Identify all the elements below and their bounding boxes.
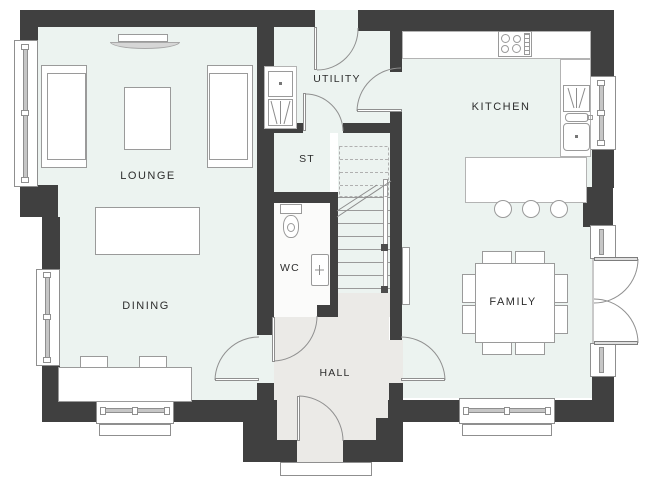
room-label-kitchen: KITCHEN <box>472 101 531 113</box>
wall-segment <box>257 192 338 203</box>
dining-door <box>215 378 259 381</box>
room-label-wc: WC <box>280 262 300 274</box>
wall-segment <box>257 305 272 317</box>
window-mullion <box>21 110 29 116</box>
console-table <box>95 207 200 255</box>
window-mullion <box>597 80 605 86</box>
window-sill <box>462 424 552 436</box>
dining-table <box>58 367 192 402</box>
room-label-dining: DINING <box>122 300 170 312</box>
window-mullion <box>100 407 106 415</box>
wc-doorway-floor <box>272 305 317 317</box>
store-door <box>303 93 306 131</box>
back-door <box>314 27 317 70</box>
family-chair <box>554 305 568 334</box>
utility-kitchen-door <box>357 109 402 112</box>
kitchen-tap <box>587 115 593 120</box>
basin <box>311 254 329 286</box>
hob-burner <box>512 44 521 53</box>
wall-segment <box>591 10 614 80</box>
back-doorway-floor <box>315 10 358 27</box>
bar-stool <box>494 200 512 218</box>
sofa-cushion <box>47 73 86 160</box>
wall-segment <box>343 123 390 133</box>
wall-segment <box>390 140 402 340</box>
french-door-arc <box>594 299 638 343</box>
wall-segment <box>20 185 58 217</box>
handrail-post <box>381 286 388 293</box>
window-mullion <box>43 314 51 320</box>
hob-burner <box>501 45 509 53</box>
window-mullion <box>43 272 51 278</box>
wall-segment <box>390 27 402 72</box>
store-doorway-floor <box>303 123 343 133</box>
family-chair <box>482 342 512 355</box>
coffee-table <box>124 87 171 150</box>
wall-segment <box>390 112 402 140</box>
family-chair <box>515 342 545 355</box>
wall-segment <box>402 10 614 31</box>
bar-stool <box>550 200 568 218</box>
sink-drain <box>575 135 578 138</box>
room-label-family: FAMILY <box>489 296 536 308</box>
family-doorway-floor <box>389 340 403 383</box>
breakfast-bar <box>465 157 587 203</box>
wall-segment <box>20 10 262 27</box>
wall-segment <box>42 400 100 422</box>
wall-segment <box>257 383 274 440</box>
window-mullion <box>545 407 551 415</box>
window-mullion <box>597 140 605 146</box>
wall-segment <box>592 376 614 422</box>
radiator <box>402 247 410 305</box>
stair-landing-floor <box>338 293 390 317</box>
family-chair <box>462 305 476 334</box>
wall-segment <box>583 187 613 227</box>
window-mullion <box>132 407 138 415</box>
sink-drain <box>279 82 282 85</box>
wall-segment <box>262 440 297 462</box>
window-mullion <box>21 44 29 50</box>
window-mullion <box>504 407 510 415</box>
front-door <box>297 396 300 441</box>
wall-segment <box>330 195 338 317</box>
window-glazing <box>599 347 604 373</box>
kitchen-doorway-floor <box>390 72 402 112</box>
window-sill <box>99 424 171 436</box>
window-mullion <box>21 177 29 183</box>
french-door-arc <box>594 259 638 303</box>
family-chair <box>462 274 476 303</box>
wc-door <box>272 317 275 362</box>
bar-stool <box>522 200 540 218</box>
fireplace <box>118 34 168 42</box>
room-label-utility: UTILITY <box>313 73 361 85</box>
toilet-bowl <box>287 223 295 232</box>
window-mullion <box>597 110 605 116</box>
window-mullion <box>463 407 469 415</box>
hob-burner <box>513 35 521 43</box>
wall-segment <box>388 400 464 422</box>
window-mullion <box>164 407 170 415</box>
hob-burner <box>501 34 510 43</box>
drainer <box>563 85 590 112</box>
room-label-lounge: LOUNGE <box>120 170 175 182</box>
kitchen-faucet <box>565 113 589 122</box>
french-door-leaf <box>594 257 638 261</box>
wall-segment <box>20 10 38 42</box>
toilet-cistern <box>280 204 302 214</box>
front-doorway-floor <box>297 440 343 462</box>
french-door-leaf <box>594 341 638 345</box>
room-label-hall: HALL <box>319 367 350 379</box>
hob-controls <box>524 33 530 55</box>
wall-segment <box>592 148 614 188</box>
window-glazing <box>599 229 604 255</box>
room-label-store: ST <box>299 153 315 165</box>
family-door <box>401 378 445 381</box>
family-chair <box>554 274 568 303</box>
french-door-threshold <box>592 259 594 343</box>
handrail-post <box>381 244 388 251</box>
washing-machine <box>268 99 293 126</box>
wall-segment <box>42 217 60 271</box>
kitchen-counter-top <box>402 31 591 59</box>
handrail <box>383 179 388 290</box>
wall-segment <box>262 10 315 27</box>
floor-plan: LOUNGE DINING UTILITY ST WC HALL KITCHEN… <box>0 0 662 500</box>
window-mullion <box>43 357 51 363</box>
porch-step <box>280 462 372 476</box>
sofa-cushion <box>209 73 248 160</box>
